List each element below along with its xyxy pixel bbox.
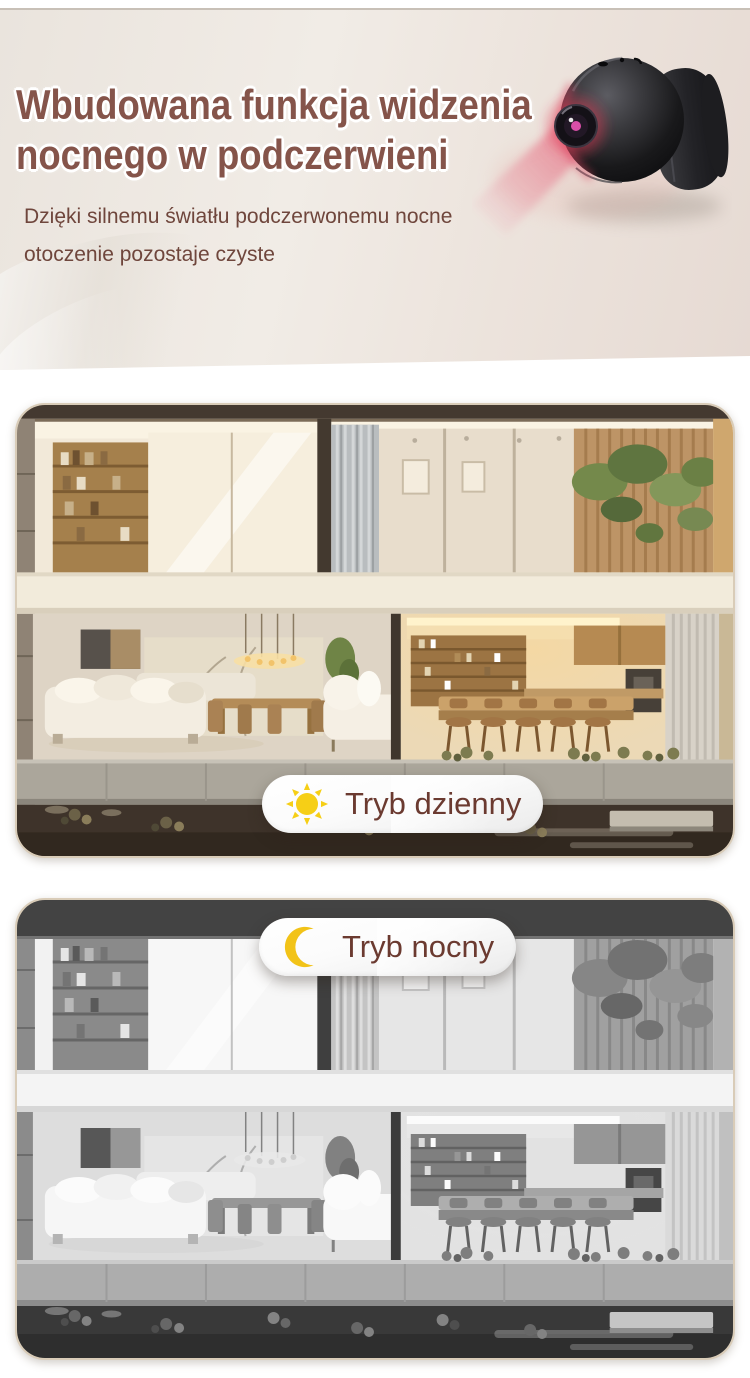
day-mode-label: Tryb dzienny	[345, 786, 521, 822]
page-title: Wbudowana funkcja widzenia nocnego w pod…	[16, 80, 576, 180]
sun-icon	[284, 781, 330, 827]
page-title-line1: Wbudowana funkcja widzenia	[16, 80, 503, 130]
moon-icon	[281, 924, 327, 970]
night-mode-label: Tryb nocny	[342, 929, 494, 965]
day-mode-image: Tryb dzienny	[15, 403, 735, 858]
night-mode-image: Tryb nocny	[15, 898, 735, 1360]
page-subtitle: Dzięki silnemu światłu podczerwonemu noc…	[24, 198, 504, 274]
page-title-line2: nocnego w podczerwieni	[16, 130, 503, 180]
day-mode-badge: Tryb dzienny	[262, 775, 543, 833]
night-mode-badge: Tryb nocny	[259, 918, 516, 976]
